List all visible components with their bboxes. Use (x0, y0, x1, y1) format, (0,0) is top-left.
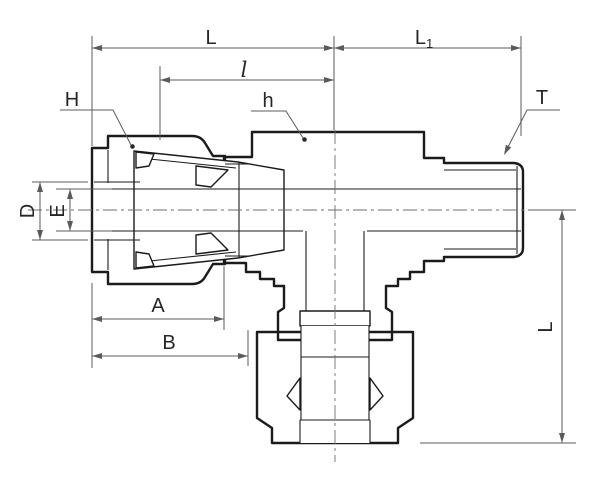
arrowhead (334, 45, 344, 51)
arrowhead (67, 189, 73, 199)
dim-label-A: A (151, 295, 165, 317)
dim-label-h: h (262, 90, 273, 112)
arrowhead (214, 316, 224, 322)
dim-label-D: D (17, 204, 39, 218)
dim-label-l-inner: l (241, 58, 248, 82)
dim-label-B: B (162, 332, 175, 354)
arrowhead (559, 210, 565, 220)
arrowhead (160, 77, 170, 83)
drawing-canvas: L L1 l H h T D E A B L (0, 0, 603, 485)
leader-H-dot (130, 144, 135, 149)
arrowhead (92, 353, 102, 359)
dim-label-L-top: L (205, 27, 216, 49)
dim-label-L1: L1 (415, 27, 433, 51)
arrowhead (238, 353, 248, 359)
branch-ferrule-left (287, 378, 300, 410)
arrowhead (324, 77, 334, 83)
arrowhead (67, 221, 73, 231)
dim-label-L-vertical: L (535, 321, 557, 332)
dim-label-L1-main: L (415, 27, 426, 49)
arrowhead (324, 45, 334, 51)
arrowhead (37, 182, 43, 192)
arrowhead (37, 230, 43, 240)
leader-h-dot (302, 137, 307, 142)
dim-label-T: T (536, 87, 548, 109)
leader-T (506, 110, 560, 151)
leader-h (251, 111, 303, 138)
dim-label-L1-subscript: 1 (426, 36, 433, 51)
arrowhead (92, 45, 102, 51)
leader-T-arrowhead (504, 145, 511, 155)
arrowhead (511, 45, 521, 51)
branch-ferrule-right (370, 378, 383, 410)
dim-label-E: E (47, 204, 69, 217)
arrowhead (92, 316, 102, 322)
fitting-technical-drawing: L L1 l H h T D E A B L (0, 0, 603, 485)
dim-label-H: H (65, 89, 79, 111)
arrowhead (559, 433, 565, 443)
leader-H (60, 110, 131, 145)
